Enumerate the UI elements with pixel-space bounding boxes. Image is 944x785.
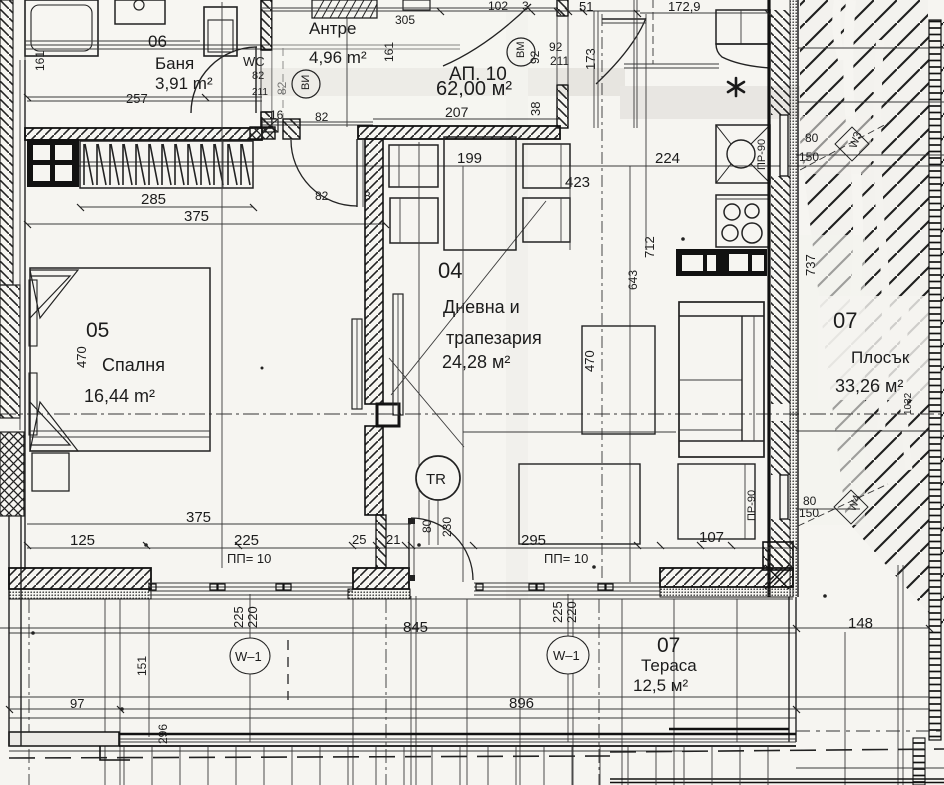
- svg-text:207: 207: [445, 104, 469, 120]
- svg-text:220: 220: [564, 601, 579, 623]
- svg-text:224: 224: [655, 150, 680, 167]
- svg-text:173: 173: [583, 48, 598, 70]
- svg-text:161: 161: [382, 42, 396, 62]
- svg-text:ПР-90: ПР-90: [746, 490, 758, 521]
- svg-text:12,5 м²: 12,5 м²: [633, 676, 688, 695]
- svg-text:24,28 м²: 24,28 м²: [442, 352, 510, 372]
- svg-text:ПР-90: ПР-90: [756, 139, 768, 170]
- svg-text:82: 82: [315, 110, 329, 124]
- svg-text:305: 305: [395, 13, 415, 27]
- svg-text:Баня: Баня: [155, 54, 194, 73]
- svg-text:04: 04: [438, 258, 462, 283]
- svg-text:TR: TR: [426, 471, 446, 488]
- svg-text:Тераса: Тераса: [641, 656, 697, 675]
- svg-text:05: 05: [86, 319, 109, 342]
- svg-text:172,9: 172,9: [668, 0, 701, 14]
- svg-text:97: 97: [70, 696, 84, 711]
- svg-text:199: 199: [457, 150, 482, 167]
- svg-text:1032: 1032: [903, 392, 914, 415]
- svg-text:150: 150: [799, 150, 819, 164]
- svg-text:161: 161: [33, 51, 47, 71]
- svg-text:ВИ: ВИ: [300, 75, 312, 90]
- svg-text:ПП= 10: ПП= 10: [227, 551, 271, 566]
- svg-text:423: 423: [565, 174, 590, 191]
- svg-text:296: 296: [156, 724, 170, 744]
- svg-text:ВМ: ВМ: [515, 42, 527, 59]
- svg-text:Спалня: Спалня: [102, 355, 165, 375]
- svg-text:470: 470: [74, 346, 89, 368]
- svg-text:16: 16: [270, 108, 284, 122]
- svg-text:257: 257: [126, 91, 148, 106]
- svg-text:ПП= 10: ПП= 10: [544, 551, 588, 566]
- svg-text:375: 375: [186, 509, 211, 526]
- svg-text:W–1: W–1: [235, 649, 262, 664]
- svg-text:82: 82: [252, 70, 264, 82]
- svg-text:33,26 м²: 33,26 м²: [835, 376, 903, 396]
- svg-text:225: 225: [550, 601, 565, 623]
- svg-text:4,96 m²: 4,96 m²: [309, 48, 367, 67]
- svg-text:62,00 м²: 62,00 м²: [436, 78, 512, 100]
- svg-text:225: 225: [231, 606, 246, 628]
- svg-text:102: 102: [488, 0, 508, 13]
- svg-text:225: 225: [234, 532, 259, 549]
- svg-text:07: 07: [657, 634, 680, 657]
- svg-text:643: 643: [626, 270, 640, 290]
- svg-text:92: 92: [549, 40, 563, 54]
- svg-text:375: 375: [184, 208, 209, 225]
- svg-text:16,44 m²: 16,44 m²: [84, 386, 155, 406]
- svg-text:148: 148: [848, 615, 873, 632]
- svg-text:220: 220: [245, 606, 260, 628]
- svg-text:712: 712: [642, 236, 657, 258]
- svg-text:211: 211: [252, 87, 268, 98]
- svg-text:25: 25: [352, 532, 366, 547]
- svg-text:896: 896: [509, 695, 534, 712]
- svg-text:125: 125: [70, 532, 95, 549]
- svg-text:150: 150: [799, 506, 819, 520]
- svg-text:3,91 m²: 3,91 m²: [155, 74, 213, 93]
- svg-text:Плосък: Плосък: [851, 348, 910, 367]
- svg-text:51: 51: [579, 0, 593, 14]
- svg-text:Дневна и: Дневна и: [443, 297, 520, 317]
- svg-text:38: 38: [528, 102, 543, 116]
- svg-text:07: 07: [833, 308, 857, 333]
- svg-text:107: 107: [699, 529, 724, 546]
- svg-text:W–1: W–1: [553, 648, 580, 663]
- svg-text:80: 80: [805, 131, 819, 145]
- svg-text:06: 06: [148, 32, 167, 51]
- svg-text:470: 470: [582, 350, 597, 372]
- svg-text:285: 285: [141, 191, 166, 208]
- svg-text:Антре: Антре: [309, 19, 356, 38]
- svg-text:211: 211: [550, 54, 569, 68]
- svg-text:845: 845: [403, 619, 428, 636]
- svg-text:151: 151: [135, 656, 149, 676]
- svg-text:21: 21: [386, 532, 400, 547]
- svg-text:295: 295: [521, 532, 546, 549]
- svg-text:737: 737: [803, 254, 818, 276]
- svg-text:трапезария: трапезария: [446, 328, 542, 348]
